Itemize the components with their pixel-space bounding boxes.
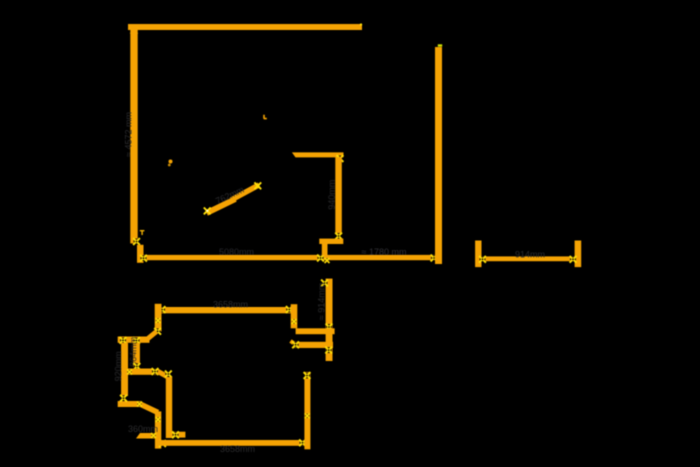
svg-text:914mm: 914mm — [515, 249, 545, 259]
svg-text:≈ 4572 mm: ≈ 4572 mm — [124, 112, 134, 157]
svg-text:360mm: 360mm — [128, 424, 158, 434]
svg-text:920mm: 920mm — [113, 351, 123, 381]
svg-text:≈ 914mm: ≈ 914mm — [317, 283, 327, 320]
svg-text:3658mm: 3658mm — [213, 300, 248, 310]
svg-text:5080mm: 5080mm — [219, 247, 254, 257]
svg-text:3658mm: 3658mm — [220, 444, 255, 454]
svg-text:940mm: 940mm — [327, 180, 337, 210]
svg-text:≈ 1780 mm: ≈ 1780 mm — [362, 247, 407, 257]
svg-text:864mm: 864mm — [128, 337, 138, 367]
